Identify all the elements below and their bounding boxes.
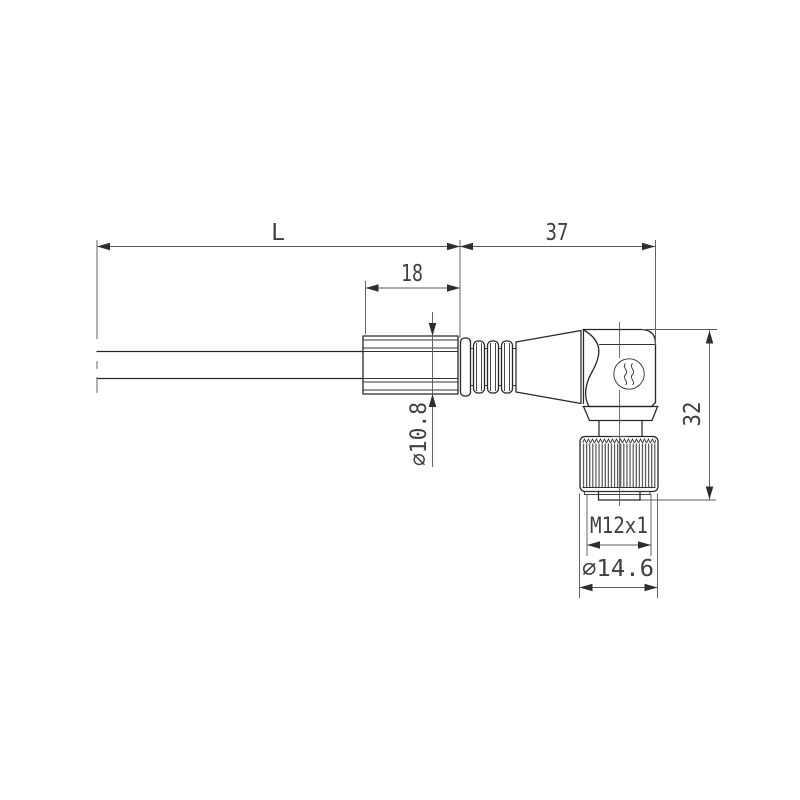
coupling-nut	[580, 437, 658, 492]
arrowhead	[447, 243, 460, 251]
skirt-slant	[652, 407, 658, 421]
cable-grip-body	[363, 336, 458, 394]
neck	[599, 421, 642, 438]
dimension-label-37: 37	[546, 220, 569, 246]
connector-head	[583, 330, 658, 438]
grip-outline	[363, 336, 458, 394]
arrowhead	[366, 284, 379, 292]
arrowhead	[97, 243, 110, 251]
bellows-rib	[474, 341, 485, 393]
bellows-rib	[502, 341, 513, 393]
moulded-cone	[516, 330, 584, 404]
arrowhead	[638, 541, 651, 549]
dimension-label-L: L	[271, 220, 285, 246]
arrowhead	[580, 584, 593, 592]
bellows-collar	[461, 338, 471, 396]
bellows-rib	[488, 341, 499, 393]
dimension-thread-m12: M12x1	[587, 494, 651, 556]
arrowhead	[642, 243, 655, 251]
head-skirt	[583, 407, 658, 421]
dimension-label-32: 32	[680, 402, 706, 427]
dimension-label-18: 18	[401, 261, 423, 287]
dimension-label-m12x1: M12x1	[590, 514, 648, 539]
dimension-18: 18	[366, 261, 461, 334]
arrowhead	[460, 243, 473, 251]
technical-drawing-m12-angled-connector: L 37 18 ⌀10.8 32 M12x1	[0, 0, 800, 800]
strain-relief-bellows	[461, 338, 517, 396]
cone-bottom	[516, 392, 581, 404]
dimension-37: 37	[460, 220, 656, 345]
dimension-label-d14-6: ⌀14.6	[582, 556, 654, 582]
skirt-slant	[584, 407, 590, 421]
dimension-label-d10-8: ⌀10.8	[407, 402, 432, 466]
arrowhead	[429, 323, 437, 336]
arrowhead	[587, 541, 600, 549]
connector-tip	[585, 492, 651, 501]
arrowhead	[706, 331, 714, 344]
arrowhead	[447, 284, 460, 292]
arrowhead	[645, 584, 658, 592]
arrowhead	[706, 487, 714, 500]
cone-top	[516, 331, 581, 343]
drawing-svg: L 37 18 ⌀10.8 32 M12x1	[0, 0, 800, 800]
